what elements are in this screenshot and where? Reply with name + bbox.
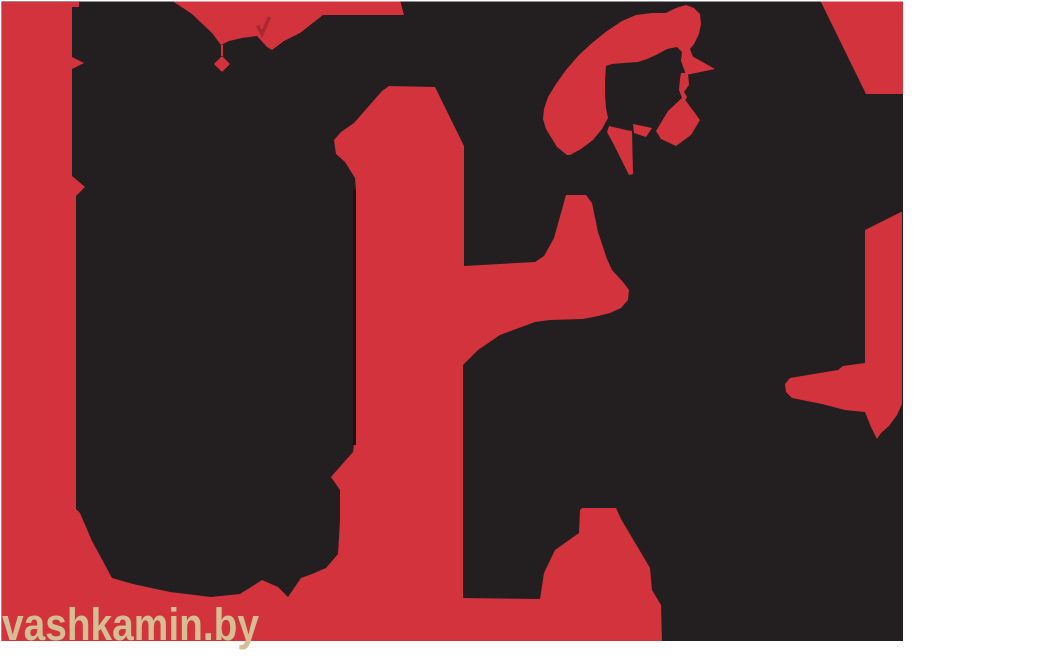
- svg-text:vashkamin.by: vashkamin.by: [2, 599, 260, 650]
